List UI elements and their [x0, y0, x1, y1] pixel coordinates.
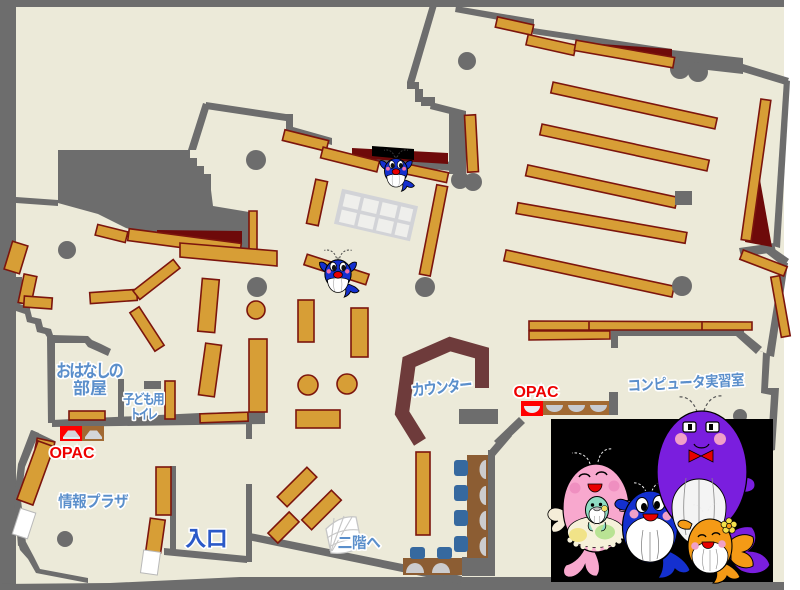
- svg-text:OPAC: OPAC: [513, 384, 558, 401]
- svg-text:OPAC: OPAC: [49, 445, 94, 462]
